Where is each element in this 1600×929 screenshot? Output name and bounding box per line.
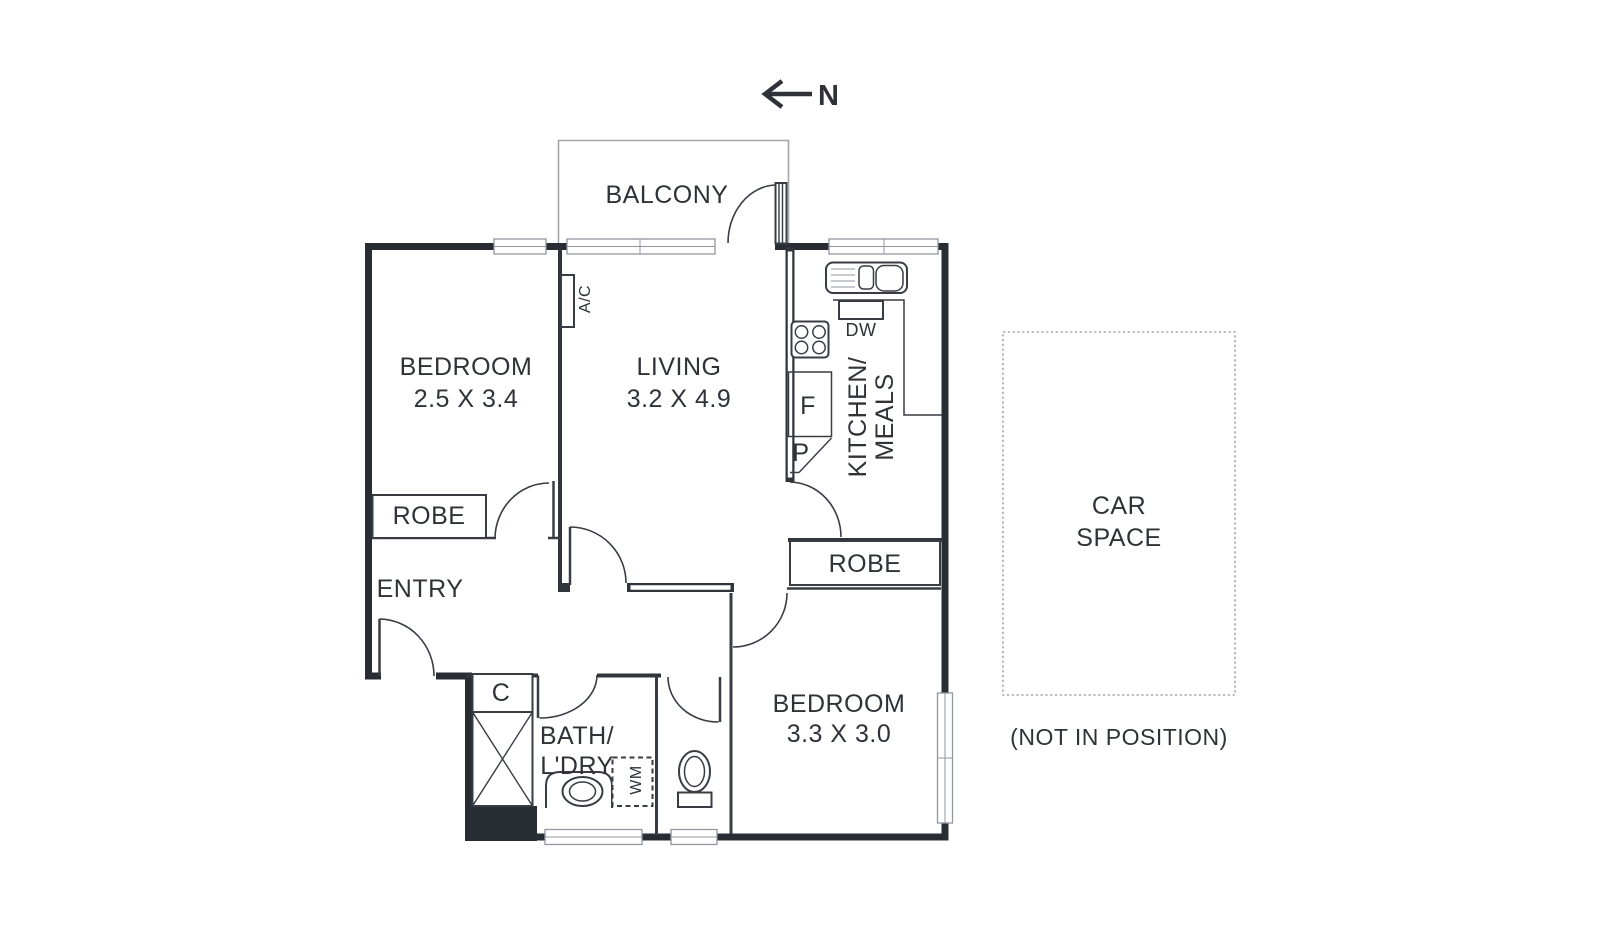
wall-corner-block <box>465 806 537 841</box>
window-toilet <box>671 830 717 845</box>
bedroom1-label: BEDROOM <box>400 353 533 381</box>
bedroom1-dims: 2.5 X 3.4 <box>414 385 519 413</box>
kitchen-door-arc <box>790 482 841 537</box>
living-door-arc <box>570 527 626 583</box>
cupboard-label: C <box>492 679 511 707</box>
entry-label: ENTRY <box>377 575 464 603</box>
robe2-label: ROBE <box>829 550 902 578</box>
labels: BALCONY BEDROOM 2.5 X 3.4 ROBE LIVING 3.… <box>377 181 1228 795</box>
dishwasher-label: DW <box>846 320 877 340</box>
balcony-door-leaf <box>776 183 787 244</box>
window-bath <box>545 830 642 845</box>
kitchen-label-line2: MEALS <box>871 373 899 460</box>
window-living <box>567 239 715 254</box>
bath-label-line2: L'DRY <box>540 752 614 780</box>
fridge-label: F <box>800 392 816 420</box>
balcony-label: BALCONY <box>606 181 729 209</box>
kitchen-label-line1: KITCHEN/ <box>844 357 872 478</box>
bedroom2-label: BEDROOM <box>773 690 906 718</box>
kitchen-sink-icon <box>826 263 907 294</box>
floorplan-page: N <box>0 0 1600 929</box>
balcony-door-arc <box>728 185 776 243</box>
bedroom1-door-arc <box>495 483 549 538</box>
car-space-label-line1: CAR <box>1092 492 1146 520</box>
toilet-icon <box>678 751 712 807</box>
bath-label-line1: BATH/ <box>540 722 614 750</box>
car-space-label-line2: SPACE <box>1076 524 1161 552</box>
bath-door-arc <box>540 675 598 718</box>
living-dims: 3.2 X 4.9 <box>627 385 732 413</box>
dishwasher-box <box>839 301 883 319</box>
north-label: N <box>818 80 839 112</box>
window-bedroom1 <box>494 239 546 254</box>
car-space-note: (NOT IN POSITION) <box>1010 724 1228 750</box>
bedroom2-dims: 3.3 X 3.0 <box>787 720 892 748</box>
ac-label: A/C <box>577 285 594 313</box>
robe1-label: ROBE <box>393 502 466 530</box>
north-arrow: N <box>765 80 839 112</box>
bedroom2-door-arc <box>733 593 787 647</box>
toilet-door-arc <box>668 677 719 722</box>
wm-label: WM <box>628 765 645 794</box>
ac-unit-icon <box>561 275 574 327</box>
living-label: LIVING <box>637 353 722 381</box>
doors <box>380 185 842 722</box>
window-bedroom2 <box>938 693 953 823</box>
entry-door-arc <box>380 619 435 676</box>
cooktop-icon <box>792 322 829 358</box>
pantry-label: P <box>792 439 809 467</box>
window-kitchen <box>829 239 938 254</box>
floorplan-drawing: N <box>0 0 1600 929</box>
